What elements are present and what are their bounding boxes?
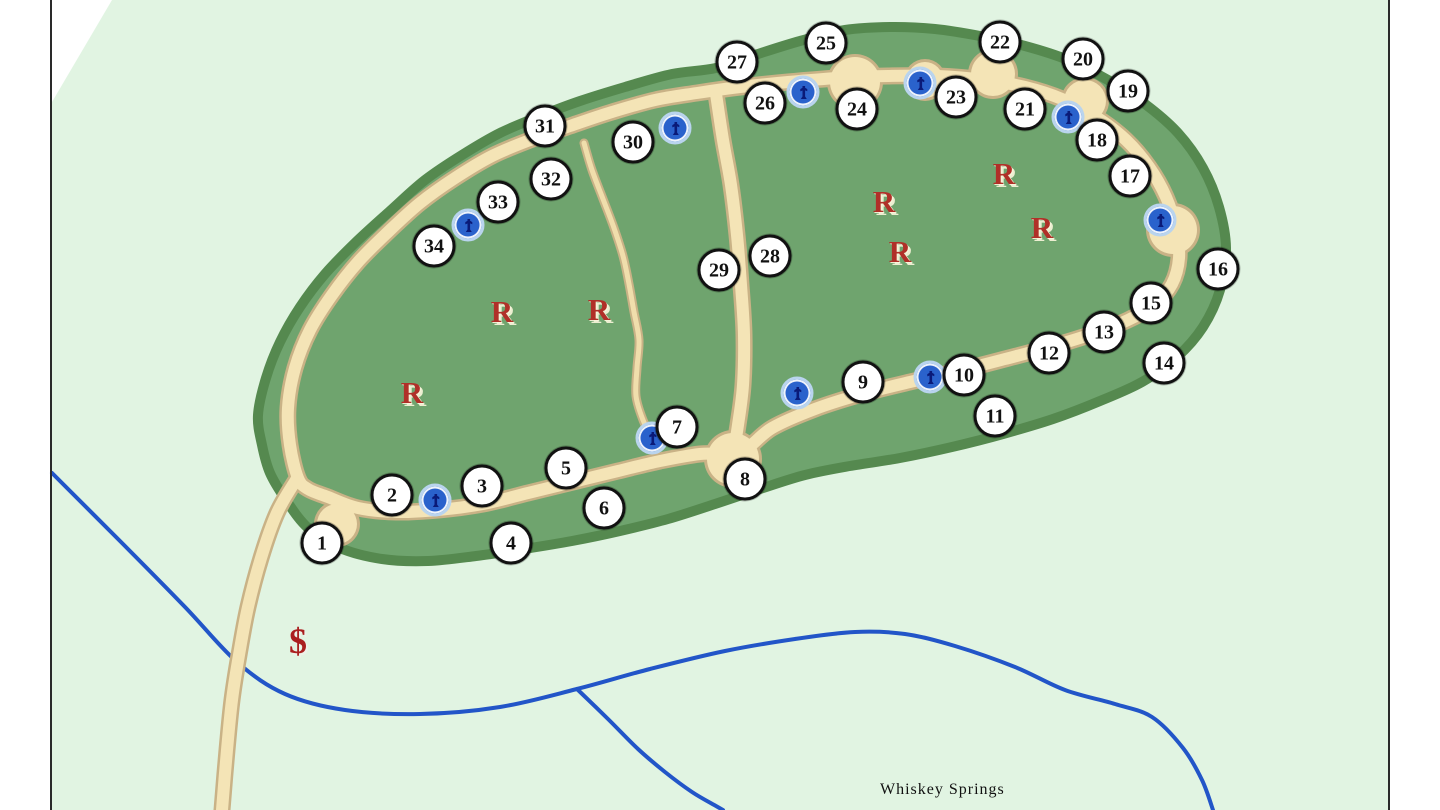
campsite-marker-2: 2 [371,474,414,517]
restroom-marker-3: R [401,375,423,411]
campsite-marker-16: 16 [1197,248,1240,291]
campsite-marker-14: 14 [1143,342,1186,385]
hand-pump-glyph [667,120,683,136]
hand-pump-glyph [460,217,476,233]
campsite-marker-9: 9 [842,361,885,404]
water-pump-icon-8 [904,67,937,100]
campsite-marker-33: 33 [477,181,520,224]
campsite-marker-13: 13 [1083,311,1126,354]
campsite-marker-22: 22 [979,21,1022,64]
campsite-marker-31: 31 [524,105,567,148]
campsite-marker-8: 8 [724,458,767,501]
campsite-marker-5: 5 [545,447,588,490]
campsite-marker-34: 34 [413,225,456,268]
restroom-marker-7: R [1031,210,1053,246]
campground-map: RRRRRRR$12345678910111213141516171819202… [0,0,1440,810]
hand-pump-glyph [1060,109,1076,125]
restroom-marker-2: R [588,292,610,328]
campsite-marker-32: 32 [530,158,573,201]
restroom-marker-1: R [491,294,513,330]
hand-pump-glyph [795,84,811,100]
hand-pump-glyph [1152,212,1168,228]
hand-pump-glyph [922,369,938,385]
campsite-marker-18: 18 [1076,119,1119,162]
map-border-left [50,0,52,810]
campsite-marker-7: 7 [656,406,699,449]
campsite-marker-29: 29 [698,249,741,292]
water-pump-icon-10 [1144,204,1177,237]
campsite-marker-4: 4 [490,522,533,565]
campsite-marker-28: 28 [749,235,792,278]
campsite-marker-10: 10 [943,354,986,397]
campsite-marker-23: 23 [935,76,978,119]
campsite-marker-26: 26 [744,82,787,125]
campsite-marker-6: 6 [583,487,626,530]
map-graphic [0,0,1440,810]
restroom-marker-4: R [873,184,895,220]
campsite-marker-30: 30 [612,121,655,164]
restroom-marker-6: R [889,234,911,270]
campsite-marker-24: 24 [836,88,879,131]
water-pump-icon-4 [914,361,947,394]
campsite-marker-17: 17 [1109,155,1152,198]
campsite-marker-25: 25 [805,22,848,65]
fee-station-marker: $ [289,620,307,662]
map-border-right [1388,0,1390,810]
campsite-marker-19: 19 [1107,70,1150,113]
hand-pump-glyph [789,385,805,401]
campsite-marker-11: 11 [974,395,1017,438]
campsite-marker-1: 1 [301,522,344,565]
water-pump-icon-6 [659,112,692,145]
campsite-marker-15: 15 [1130,282,1173,325]
campsite-marker-27: 27 [716,41,759,84]
water-pump-icon-3 [781,377,814,410]
hand-pump-glyph [427,492,443,508]
campsite-marker-3: 3 [461,465,504,508]
campsite-marker-21: 21 [1004,88,1047,131]
campsite-marker-12: 12 [1028,332,1071,375]
water-pump-icon-7 [787,76,820,109]
hand-pump-glyph [912,75,928,91]
stream-label: Whiskey Springs [880,781,1005,799]
restroom-marker-5: R [993,156,1015,192]
water-pump-icon-1 [419,484,452,517]
campsite-marker-20: 20 [1062,38,1105,81]
